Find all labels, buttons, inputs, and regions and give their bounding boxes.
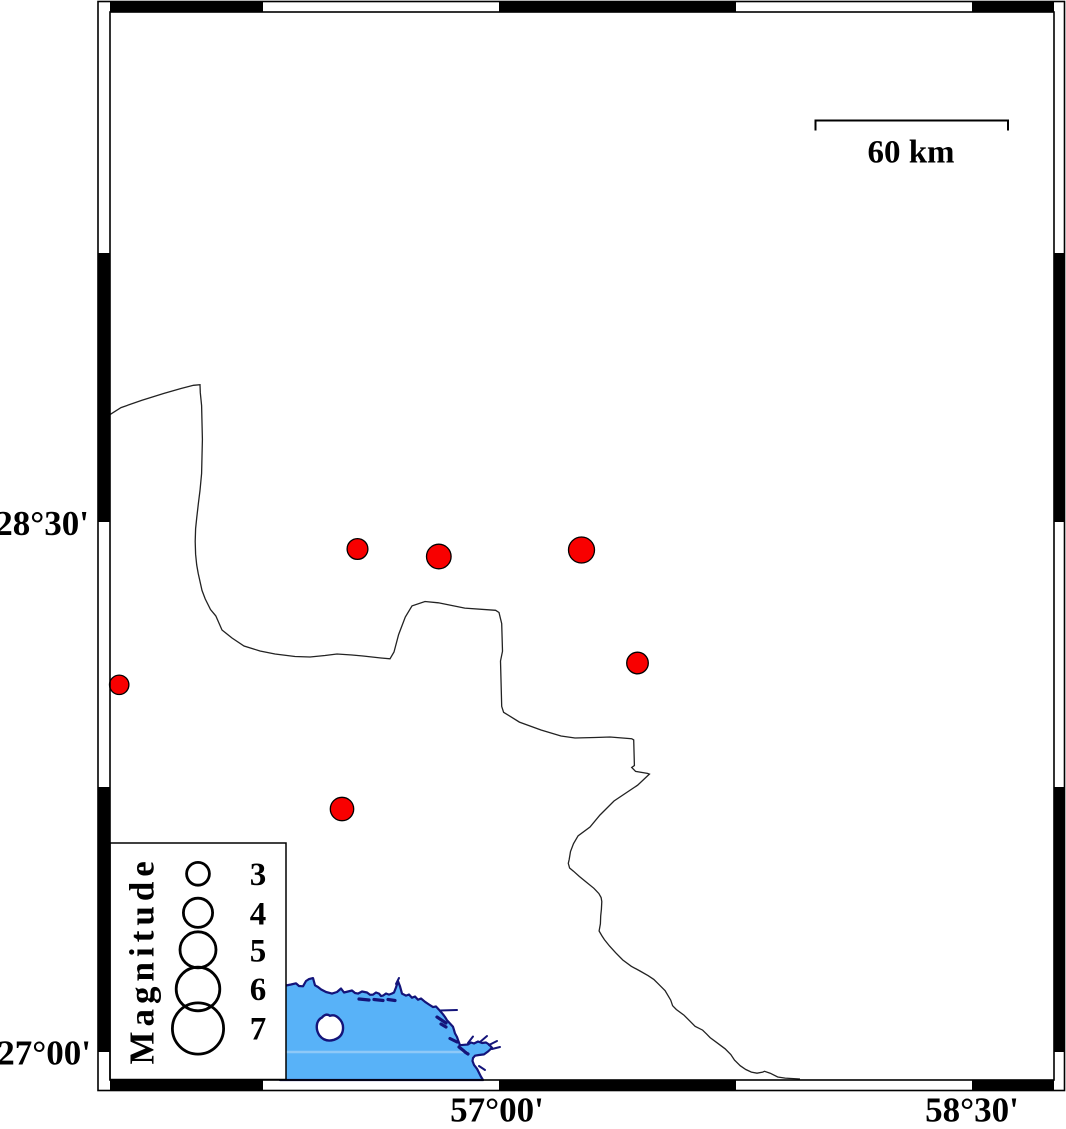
svg-text:7: 7 <box>250 1012 267 1048</box>
svg-text:3: 3 <box>250 857 267 893</box>
svg-text:27°00': 27°00' <box>0 1034 91 1073</box>
svg-text:Magnitude: Magnitude <box>123 856 162 1064</box>
svg-text:58°30': 58°30' <box>925 1091 1019 1129</box>
svg-text:28°30': 28°30' <box>0 504 89 543</box>
svg-text:5: 5 <box>250 934 267 970</box>
svg-text:4: 4 <box>250 897 267 933</box>
svg-text:60 km: 60 km <box>867 135 954 171</box>
svg-text:57°00': 57°00' <box>450 1091 544 1129</box>
svg-text:6: 6 <box>250 972 267 1008</box>
